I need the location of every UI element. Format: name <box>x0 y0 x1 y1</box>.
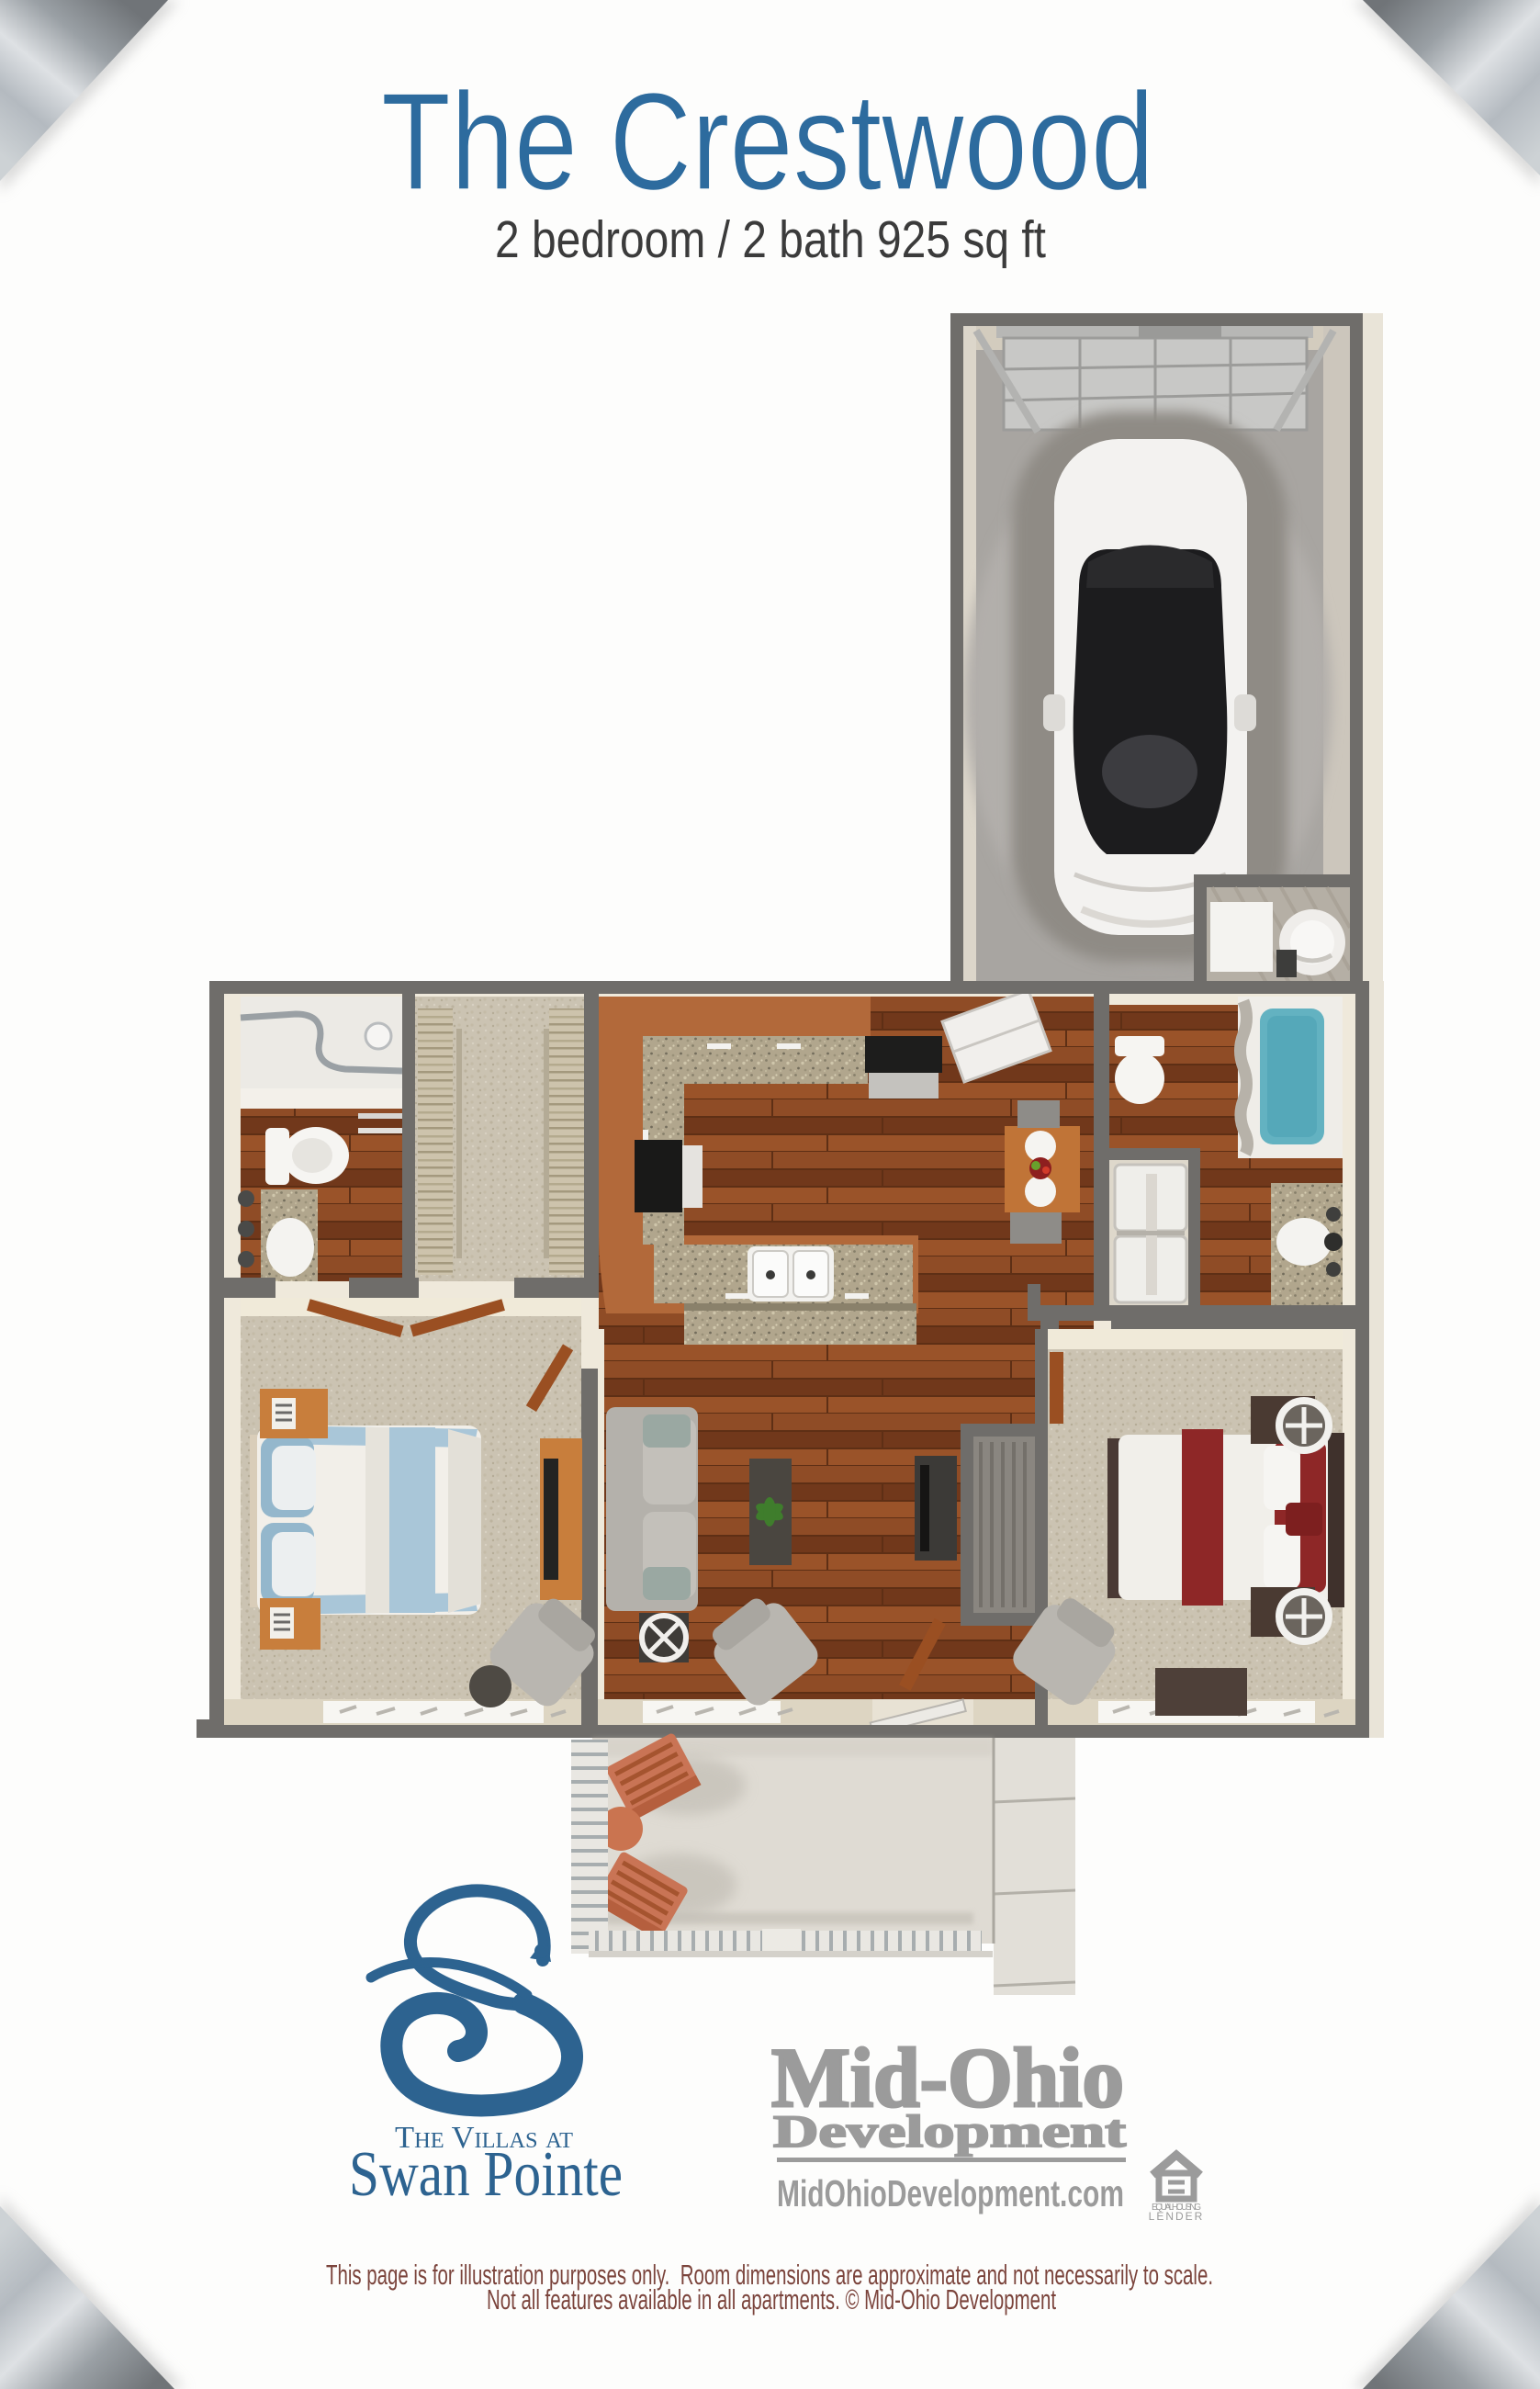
svg-text:Development: Development <box>773 2105 1126 2157</box>
svg-text:2 bedroom / 2 bath 925 sq ft: 2 bedroom / 2 bath 925 sq ft <box>495 210 1046 269</box>
svg-text:LENDER: LENDER <box>1149 2210 1205 2223</box>
svg-text:Not all features available in: Not all features available in all apartm… <box>487 2283 1056 2316</box>
svg-text:MidOhioDevelopment.com: MidOhioDevelopment.com <box>777 2172 1124 2214</box>
svg-text:Swan Pointe: Swan Pointe <box>349 2139 623 2210</box>
svg-text:The Crestwood: The Crestwood <box>381 63 1154 219</box>
